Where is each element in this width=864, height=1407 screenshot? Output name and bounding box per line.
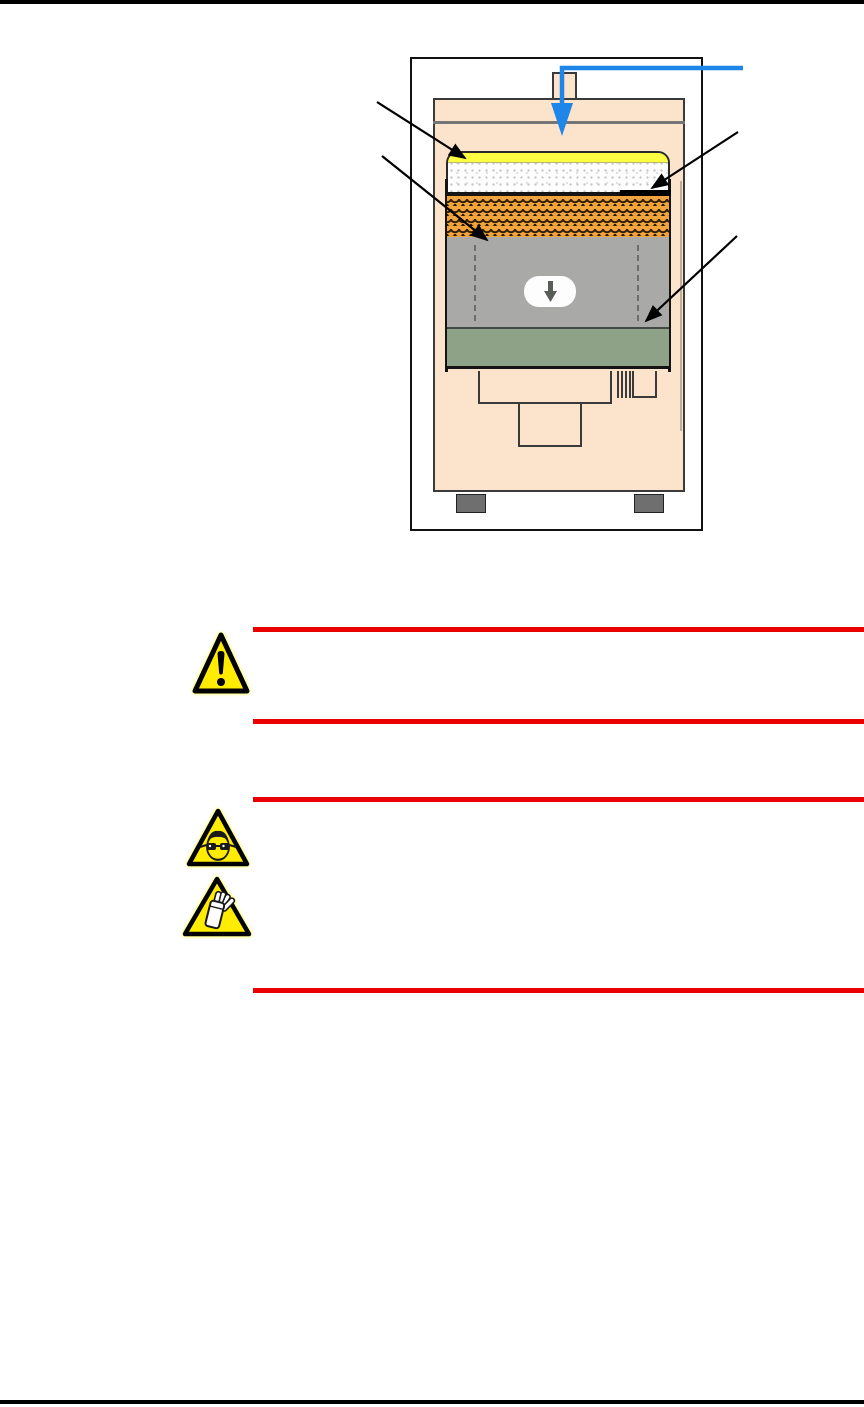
outlet-housing-upper — [478, 371, 612, 404]
warning-rule-bottom — [253, 988, 864, 993]
seal-strip — [448, 153, 668, 163]
mesh-filter — [447, 196, 669, 237]
cabinet-inner-wall-line — [680, 181, 682, 431]
manual-page — [0, 0, 864, 1407]
warning-rule-top — [253, 797, 864, 802]
collection-chamber — [447, 237, 669, 327]
general-warning-icon — [192, 631, 250, 697]
outlet-housing-lower — [518, 404, 582, 447]
side-channel-line — [629, 371, 631, 398]
page-top-rule — [0, 0, 864, 4]
chamber-bag-dashed-line-right — [637, 245, 639, 321]
warning-rule-bottom — [253, 719, 864, 724]
side-channel-line — [621, 371, 623, 398]
chamber-bag-dashed-line-left — [474, 245, 476, 321]
foot-right — [634, 494, 664, 513]
equipment-figure-frame — [410, 57, 703, 531]
eye-protection-icon — [186, 806, 250, 870]
page-footer-rule — [0, 1400, 864, 1404]
chamber-flow-badge — [524, 276, 576, 307]
side-channel-line — [617, 371, 619, 398]
foot-left — [456, 494, 486, 513]
cabinet-lid-seam — [433, 121, 685, 124]
side-channel-line — [625, 371, 627, 398]
hand-protection-icon — [182, 876, 252, 938]
warning-rule-top — [253, 627, 864, 632]
side-channel-box — [632, 371, 657, 398]
down-arrow-icon — [542, 280, 558, 303]
foam-pre-filter — [446, 151, 670, 195]
base-tray — [447, 327, 669, 369]
